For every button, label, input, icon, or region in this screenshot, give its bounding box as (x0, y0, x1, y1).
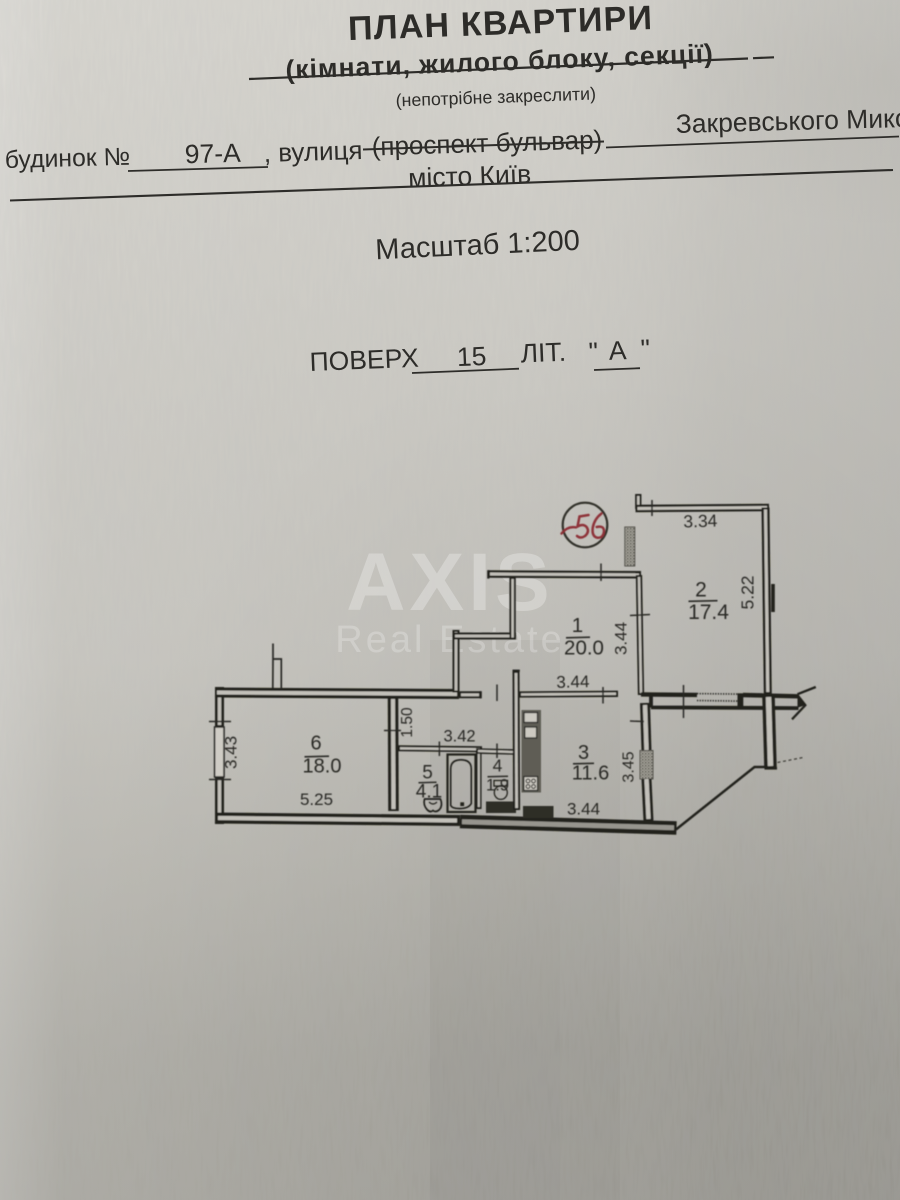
svg-text:ЛІТ.: ЛІТ. (520, 337, 567, 369)
svg-text:AXIS: AXIS (346, 537, 553, 628)
svg-text:3.44: 3.44 (567, 800, 600, 819)
svg-text:": " (640, 334, 651, 364)
svg-text:18.0: 18.0 (303, 756, 342, 778)
svg-text:2: 2 (695, 579, 707, 602)
svg-text:Real Estate: Real Estate (335, 619, 564, 661)
svg-text:А: А (608, 335, 627, 366)
svg-text:1: 1 (572, 614, 583, 637)
svg-text:будинок №: будинок № (4, 144, 130, 174)
svg-text:3.44: 3.44 (556, 672, 590, 692)
svg-text:6: 6 (310, 733, 321, 755)
svg-text:4: 4 (493, 756, 503, 776)
svg-text:3.44: 3.44 (612, 622, 631, 655)
svg-text:15: 15 (456, 341, 487, 372)
svg-text:4.1: 4.1 (416, 782, 442, 803)
svg-text:1.9: 1.9 (486, 777, 509, 795)
svg-text:17.4: 17.4 (688, 601, 729, 624)
svg-text:3: 3 (578, 742, 589, 764)
svg-text:місто Київ: місто Київ (408, 159, 532, 193)
svg-text:3.42: 3.42 (443, 728, 475, 746)
svg-text:, вулиця: , вулиця (263, 135, 363, 168)
svg-text:5: 5 (422, 763, 433, 784)
svg-text:3.45: 3.45 (621, 751, 638, 782)
svg-text:97-А: 97-А (184, 138, 241, 169)
svg-text:3.34: 3.34 (683, 511, 718, 532)
svg-text:ПОВЕРХ: ПОВЕРХ (309, 343, 420, 377)
svg-text:3.43: 3.43 (222, 736, 241, 769)
svg-text:": " (588, 337, 599, 367)
svg-text:11.6: 11.6 (572, 763, 609, 785)
svg-text:1.50: 1.50 (399, 707, 416, 738)
svg-text:5.25: 5.25 (300, 790, 333, 809)
svg-text:20.0: 20.0 (564, 637, 604, 660)
svg-text:Закревського Мико: Закревського Мико (675, 103, 900, 139)
svg-text:5.22: 5.22 (738, 575, 758, 609)
